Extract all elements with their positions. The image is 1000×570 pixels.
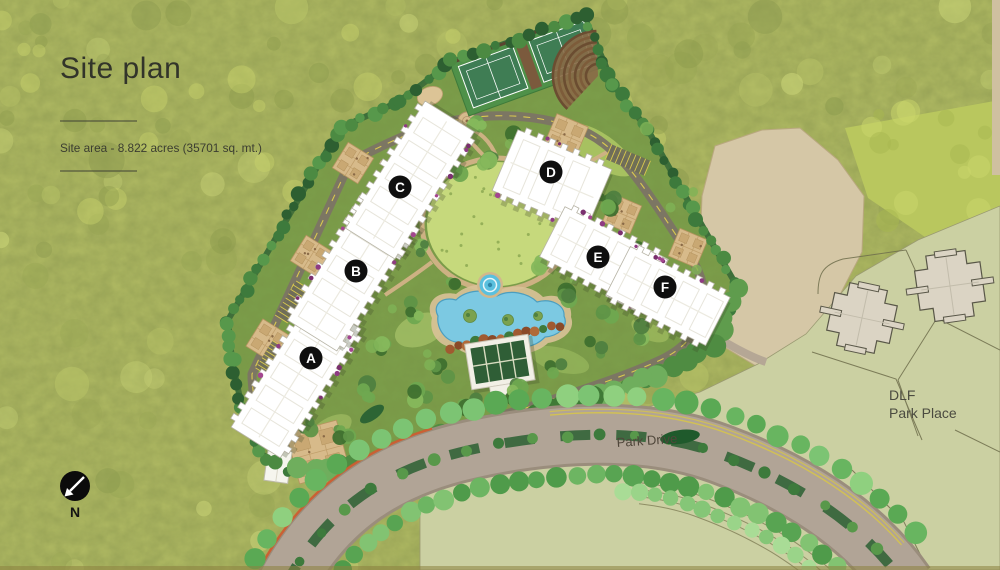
tree-icon <box>77 198 104 225</box>
tree-icon <box>291 186 306 201</box>
tree-icon <box>532 388 552 408</box>
tree-icon <box>583 22 592 31</box>
tree-icon <box>441 370 455 384</box>
tree-icon <box>449 192 452 195</box>
tree-icon <box>527 233 530 236</box>
tree-icon <box>470 477 490 497</box>
tree-icon <box>249 492 275 518</box>
building-label-text: E <box>593 250 602 265</box>
tree-icon <box>424 359 435 370</box>
tree-icon <box>791 435 810 454</box>
tree-icon <box>508 389 529 410</box>
tree-icon <box>253 100 265 112</box>
tree-icon <box>257 254 269 266</box>
tree-icon <box>548 21 560 33</box>
neighbor-label-line1: DLF <box>889 387 915 403</box>
building-label-d: D <box>540 161 563 184</box>
tree-icon <box>894 191 918 215</box>
tree-icon <box>710 509 725 524</box>
tree-icon <box>491 41 500 50</box>
tree-icon <box>144 368 165 389</box>
tree-icon <box>277 221 291 235</box>
tree-icon <box>958 166 971 179</box>
neighbor-label-line2: Park Place <box>889 405 957 421</box>
tree-icon <box>623 465 645 487</box>
tree-icon <box>758 466 770 478</box>
tree-icon <box>546 467 567 488</box>
tree-icon <box>305 469 327 491</box>
building-label-a: A <box>300 347 323 370</box>
tree-icon <box>748 0 782 34</box>
tree-icon <box>440 402 462 424</box>
tree-icon <box>42 186 61 205</box>
tree-icon <box>407 384 421 398</box>
tree-icon <box>556 322 565 331</box>
building-label-b: B <box>345 260 368 283</box>
tree-icon <box>523 29 536 42</box>
tree-icon <box>606 78 619 91</box>
tree-icon <box>377 103 388 114</box>
tree-icon <box>595 341 608 354</box>
tree-icon <box>701 398 721 418</box>
tree-icon <box>493 438 504 449</box>
tree-icon <box>210 228 236 254</box>
tree-icon <box>55 367 89 401</box>
tree-icon <box>676 185 690 199</box>
tree-icon <box>295 557 305 567</box>
tree-icon <box>490 474 510 494</box>
building-label-text: A <box>306 351 316 366</box>
site-plan-canvas: A B C D E F Site plan Site area - 8.822 … <box>0 0 1000 570</box>
tree-icon <box>141 86 168 113</box>
tree-icon <box>181 251 202 272</box>
tree-icon <box>228 303 239 314</box>
pool-island <box>464 310 477 323</box>
tree-icon <box>414 311 424 321</box>
edge-land-strip <box>992 0 1000 175</box>
tree-icon <box>476 43 491 58</box>
tree-icon <box>504 317 508 321</box>
tree-icon <box>556 384 579 407</box>
tree-icon <box>287 457 308 478</box>
tree-icon <box>343 431 354 442</box>
tree-icon <box>36 242 52 258</box>
tree-icon <box>666 203 676 213</box>
north-label: N <box>70 504 80 520</box>
tree-icon <box>372 524 389 541</box>
tree-icon <box>726 407 744 425</box>
tree-icon <box>393 419 413 439</box>
tree-icon <box>562 432 574 444</box>
tree-icon <box>594 429 606 441</box>
page-title: Site plan <box>60 52 181 85</box>
tree-icon <box>706 235 716 245</box>
building-label-text: D <box>546 165 556 180</box>
tree-icon <box>627 387 646 406</box>
tree-icon <box>257 529 276 548</box>
tree-icon <box>578 385 599 406</box>
tree-icon <box>317 528 326 537</box>
tree-icon <box>410 84 422 96</box>
tree-icon <box>825 97 843 115</box>
tree-icon <box>267 241 277 251</box>
tree-icon <box>561 289 576 304</box>
tree-icon <box>528 471 545 488</box>
tree-icon <box>897 99 920 122</box>
tree-icon <box>587 465 606 484</box>
tree-icon <box>416 409 436 429</box>
tree-icon <box>652 388 675 411</box>
tree-icon <box>424 75 433 84</box>
tree-icon <box>484 391 508 415</box>
tree-icon <box>767 425 789 447</box>
tree-icon <box>547 367 559 379</box>
tree-icon <box>689 187 699 197</box>
tree-icon <box>692 265 702 275</box>
building-label-text: B <box>351 264 361 279</box>
tree-icon <box>21 73 41 93</box>
tree-icon <box>445 29 460 44</box>
tree-icon <box>888 505 907 524</box>
tree-icon <box>809 446 829 466</box>
tree-icon <box>869 132 891 154</box>
tree-icon <box>339 504 351 516</box>
tree-icon <box>267 37 281 51</box>
tree-icon <box>873 109 884 120</box>
tree-icon <box>905 522 928 545</box>
tree-icon <box>235 295 244 304</box>
tree-icon <box>454 341 462 349</box>
tree-icon <box>535 22 549 36</box>
tree-icon <box>748 503 769 524</box>
tree-icon <box>481 152 498 169</box>
tree-icon <box>220 317 234 331</box>
tree-icon <box>698 443 708 453</box>
tree-icon <box>640 122 654 136</box>
tree-icon <box>773 537 791 555</box>
tree-icon <box>461 446 472 457</box>
tree-icon <box>428 453 441 466</box>
tree-icon <box>366 340 379 353</box>
tree-icon <box>416 248 425 257</box>
tree-icon <box>418 496 435 513</box>
tree-icon <box>274 90 293 109</box>
tree-icon <box>596 305 611 320</box>
tree-icon <box>694 501 711 518</box>
tree-icon <box>527 433 538 444</box>
tree-icon <box>642 54 675 87</box>
building-label-f: F <box>654 276 677 299</box>
tree-icon <box>355 113 365 123</box>
tree-icon <box>365 483 377 495</box>
tree-icon <box>223 351 238 366</box>
tree-icon <box>320 151 331 162</box>
tree-icon <box>663 490 678 505</box>
tree-icon <box>781 73 803 95</box>
tree-icon <box>721 265 730 274</box>
building-label-c: C <box>389 176 412 199</box>
tree-icon <box>147 328 174 355</box>
tree-icon <box>675 391 699 415</box>
tree-icon <box>460 233 463 236</box>
tree-icon <box>688 212 703 227</box>
tree-icon <box>538 222 541 225</box>
tree-icon <box>30 13 52 35</box>
tree-icon <box>497 241 500 244</box>
tree-icon <box>445 250 448 253</box>
tree-icon <box>131 1 161 31</box>
tree-icon <box>633 333 646 346</box>
tree-icon <box>443 52 457 66</box>
tree-icon <box>449 278 461 290</box>
tree-icon <box>745 523 760 538</box>
tree-icon <box>255 152 275 172</box>
tree-icon <box>728 455 739 466</box>
tree-icon <box>518 254 521 257</box>
tree-icon <box>569 467 587 485</box>
tree-icon <box>391 70 405 84</box>
tree-icon <box>539 325 547 333</box>
tree-icon <box>465 264 468 267</box>
tree-icon <box>651 143 664 156</box>
tree-icon <box>228 65 256 93</box>
tree-icon <box>660 473 680 493</box>
tree-icon <box>870 489 890 509</box>
tree-icon <box>22 263 48 289</box>
tree-icon <box>497 248 500 251</box>
tree-icon <box>601 199 616 214</box>
tree-icon <box>716 251 731 266</box>
building-label-e: E <box>587 246 610 269</box>
fountain-center <box>488 283 492 287</box>
tree-icon <box>433 490 454 511</box>
building-label-text: F <box>661 280 669 295</box>
tree-icon <box>165 0 191 26</box>
bottom-border-strip <box>0 566 1000 570</box>
tree-icon <box>423 349 432 358</box>
tree-icon <box>631 484 648 501</box>
tree-icon <box>273 507 293 527</box>
tree-icon <box>251 264 261 274</box>
tree-icon <box>472 215 475 218</box>
tree-icon <box>372 429 392 449</box>
tree-icon <box>787 547 803 563</box>
tree-icon <box>60 319 88 347</box>
tree-icon <box>460 244 463 247</box>
tree-icon <box>354 73 383 102</box>
tree-icon <box>648 488 662 502</box>
tree-icon <box>196 501 212 517</box>
tree-icon <box>759 530 774 545</box>
tree-icon <box>978 126 992 140</box>
tree-icon <box>241 284 255 298</box>
tree-icon <box>832 459 852 479</box>
tree-icon <box>482 187 485 190</box>
tree-icon <box>387 515 403 531</box>
tree-icon <box>388 304 397 313</box>
tree-icon <box>850 472 873 495</box>
tree-icon <box>155 118 171 134</box>
tree-icon <box>90 117 105 132</box>
tree-icon <box>357 383 370 396</box>
tree-icon <box>547 322 556 331</box>
tree-icon <box>614 483 631 500</box>
tree-icon <box>474 176 477 179</box>
tree-icon <box>463 398 486 421</box>
tree-icon <box>678 476 699 497</box>
tree-icon <box>896 77 917 98</box>
tree-icon <box>698 484 714 500</box>
tree-icon <box>520 262 523 265</box>
tree-icon <box>226 366 240 380</box>
pool-island <box>503 315 514 326</box>
fountain <box>477 272 503 298</box>
tree-icon <box>189 83 205 99</box>
tree-icon <box>629 106 642 119</box>
tree-icon <box>18 21 33 36</box>
tree-icon <box>230 378 242 390</box>
tree-icon <box>509 471 529 491</box>
tree-icon <box>420 240 429 249</box>
tree-icon <box>17 43 30 56</box>
tree-icon <box>95 468 120 493</box>
tree-icon <box>72 399 102 429</box>
tree-icon <box>33 44 46 57</box>
tree-icon <box>788 483 800 495</box>
tree-icon <box>730 497 750 517</box>
tree-icon <box>579 7 594 22</box>
tree-icon <box>453 484 471 502</box>
tree-icon <box>643 470 660 487</box>
tree-icon <box>399 14 418 33</box>
tree-icon <box>534 313 538 317</box>
tree-icon <box>282 209 292 219</box>
tree-icon <box>847 522 858 533</box>
tree-icon <box>289 202 298 211</box>
tree-icon <box>477 120 487 130</box>
tree-icon <box>950 144 970 164</box>
tree-icon <box>739 73 773 107</box>
tree-icon <box>441 249 444 252</box>
tree-icon <box>341 24 359 42</box>
tree-icon <box>605 465 622 482</box>
tree-icon <box>615 87 630 102</box>
site-plan: A B C D E F Site plan Site area - 8.822 … <box>0 0 1000 570</box>
tree-icon <box>349 440 370 461</box>
tree-icon <box>555 358 567 370</box>
tree-icon <box>309 63 329 83</box>
tree-icon <box>871 543 883 555</box>
tree-icon <box>445 345 454 354</box>
tree-icon <box>397 468 408 479</box>
tree-icon <box>734 41 751 58</box>
tree-icon <box>201 172 225 196</box>
tree-icon <box>747 415 766 434</box>
tree-icon <box>590 32 599 41</box>
tree-icon <box>659 156 668 165</box>
building-label-text: C <box>395 180 405 195</box>
tree-icon <box>968 155 991 178</box>
tree-icon <box>627 23 654 50</box>
tree-icon <box>0 86 21 107</box>
tree-icon <box>289 488 309 508</box>
tree-icon <box>680 496 695 511</box>
tree-icon <box>481 190 484 193</box>
tree-icon <box>593 44 604 55</box>
tree-icon <box>466 313 470 317</box>
tree-icon <box>489 193 492 196</box>
tree-icon <box>327 454 348 475</box>
tree-icon <box>345 546 363 564</box>
tree-icon <box>584 336 595 347</box>
tree-icon <box>530 327 540 337</box>
tree-icon <box>876 209 899 232</box>
tree-icon <box>812 545 832 565</box>
tree-icon <box>674 39 703 68</box>
tree-icon <box>873 56 892 75</box>
tree-icon <box>603 385 625 407</box>
tree-icon <box>727 516 742 531</box>
tree-icon <box>699 226 709 236</box>
tree-icon <box>99 186 120 207</box>
tree-icon <box>330 89 354 113</box>
site-area-text: Site area - 8.822 acres (35701 sq. mt.) <box>60 141 262 155</box>
tree-icon <box>820 500 830 510</box>
tree-icon <box>938 110 955 127</box>
tree-icon <box>480 222 483 225</box>
tree-icon <box>222 329 236 343</box>
tree-icon <box>139 412 157 430</box>
